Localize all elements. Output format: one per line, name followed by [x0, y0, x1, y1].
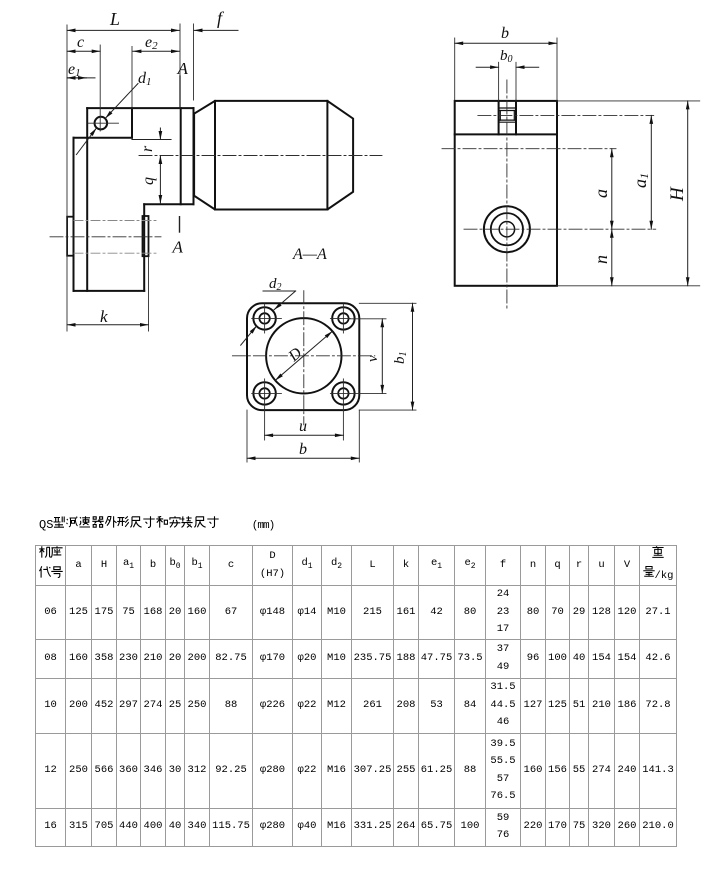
- svg-text:n: n: [591, 255, 611, 264]
- svg-text:u: u: [299, 418, 307, 435]
- svg-text:A: A: [172, 238, 184, 257]
- svg-text:b: b: [501, 25, 509, 42]
- svg-text:A—A: A—A: [292, 246, 327, 263]
- svg-text:e1: e1: [68, 61, 81, 79]
- svg-text:L: L: [109, 9, 120, 29]
- svg-text:k: k: [100, 307, 108, 326]
- svg-text:f: f: [217, 8, 225, 28]
- svg-text:r: r: [139, 145, 156, 152]
- svg-text:a: a: [591, 189, 611, 198]
- svg-text:b0: b0: [500, 48, 513, 65]
- svg-text:c: c: [77, 34, 84, 51]
- svg-text:q: q: [140, 177, 157, 185]
- svg-text:b1: b1: [392, 352, 409, 365]
- svg-text:e2: e2: [145, 34, 158, 52]
- svg-text:b: b: [299, 441, 307, 458]
- svg-text:D: D: [285, 344, 306, 365]
- svg-text:a1: a1: [630, 173, 651, 188]
- svg-text:d2: d2: [269, 276, 282, 293]
- svg-text:v: v: [365, 355, 381, 362]
- svg-text:A: A: [177, 59, 189, 78]
- svg-text:H: H: [667, 186, 688, 202]
- svg-text:d1: d1: [138, 70, 152, 88]
